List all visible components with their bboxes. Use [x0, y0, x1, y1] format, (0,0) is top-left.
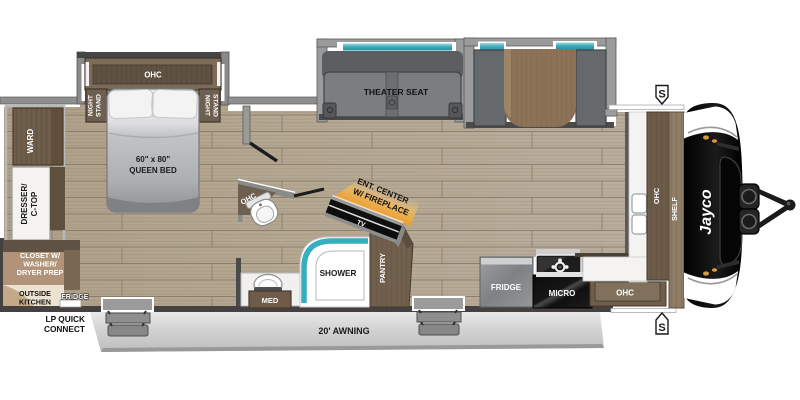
svg-text:NIGHT: NIGHT — [204, 95, 211, 117]
svg-text:SHELF: SHELF — [670, 197, 679, 221]
svg-text:FRIDGE: FRIDGE — [491, 283, 522, 292]
svg-text:PANTRY: PANTRY — [378, 253, 387, 283]
svg-text:KITCHEN: KITCHEN — [19, 298, 51, 307]
svg-text:THEATER SEAT: THEATER SEAT — [364, 87, 429, 97]
svg-text:FRIDGE: FRIDGE — [61, 292, 88, 301]
svg-text:OHC: OHC — [616, 289, 634, 298]
svg-text:OHC: OHC — [144, 71, 162, 80]
svg-text:SHOWER: SHOWER — [320, 269, 357, 278]
svg-text:STAND: STAND — [96, 94, 103, 117]
svg-text:MICRO: MICRO — [549, 289, 576, 298]
svg-text:STAND: STAND — [212, 94, 219, 117]
svg-text:C-TOP: C-TOP — [30, 191, 39, 216]
svg-text:20' AWNING: 20' AWNING — [318, 326, 369, 336]
svg-text:Jayco: Jayco — [698, 189, 715, 235]
svg-text:S: S — [658, 322, 665, 334]
svg-text:S: S — [658, 89, 665, 101]
svg-text:60" x 80": 60" x 80" — [136, 155, 170, 164]
svg-text:OHC: OHC — [652, 187, 661, 204]
svg-text:NIGHT: NIGHT — [88, 94, 95, 116]
svg-text:MED: MED — [262, 296, 279, 305]
svg-text:WARD: WARD — [26, 129, 35, 154]
svg-text:CONNECT: CONNECT — [44, 324, 85, 334]
svg-text:DRYER PREP: DRYER PREP — [17, 268, 64, 277]
svg-text:DRESSER/: DRESSER/ — [20, 183, 29, 225]
svg-text:QUEEN BED: QUEEN BED — [129, 166, 177, 175]
svg-text:LP QUICK: LP QUICK — [46, 314, 86, 324]
